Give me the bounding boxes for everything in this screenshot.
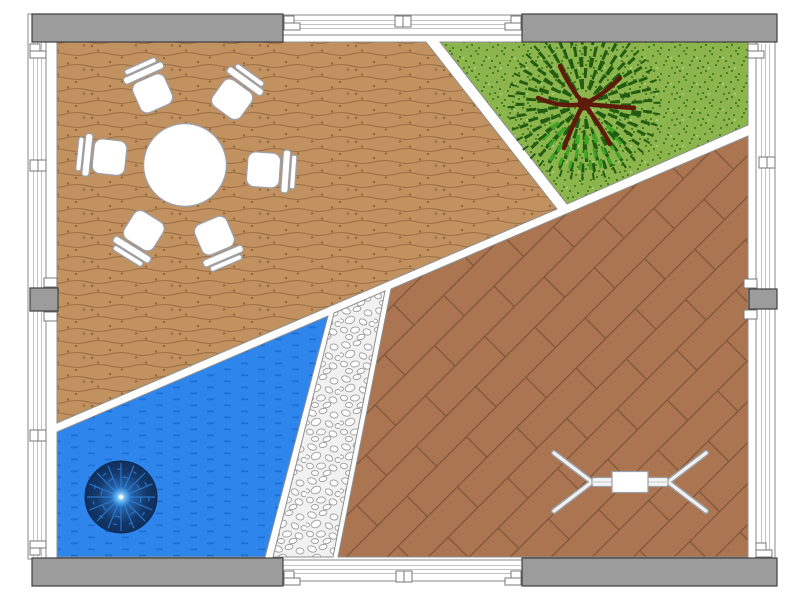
post-bracket [44, 278, 57, 287]
post-bracket [44, 312, 57, 321]
fence-connector [30, 430, 46, 441]
wall-segment-top-right[interactable] [522, 14, 777, 42]
wall-segment-bottom-left[interactable] [32, 558, 283, 586]
fence-connector [759, 157, 775, 168]
wall-post-right[interactable] [749, 289, 777, 309]
bench-seat [612, 472, 648, 493]
wall-segment-top-left[interactable] [32, 14, 283, 42]
garden-plan [0, 0, 800, 600]
fence-connector [396, 571, 412, 582]
fence-connector [30, 160, 46, 171]
pool-fountain-light[interactable] [85, 461, 157, 533]
fence-connector [395, 16, 411, 27]
round-dining-table[interactable] [144, 124, 227, 207]
post-bracket [744, 310, 757, 319]
wall-post-left[interactable] [30, 288, 58, 311]
design-canvas [0, 0, 800, 600]
patio-chair[interactable] [246, 147, 298, 193]
wall-segment-bottom-right[interactable] [522, 558, 777, 586]
post-bracket [744, 279, 757, 288]
